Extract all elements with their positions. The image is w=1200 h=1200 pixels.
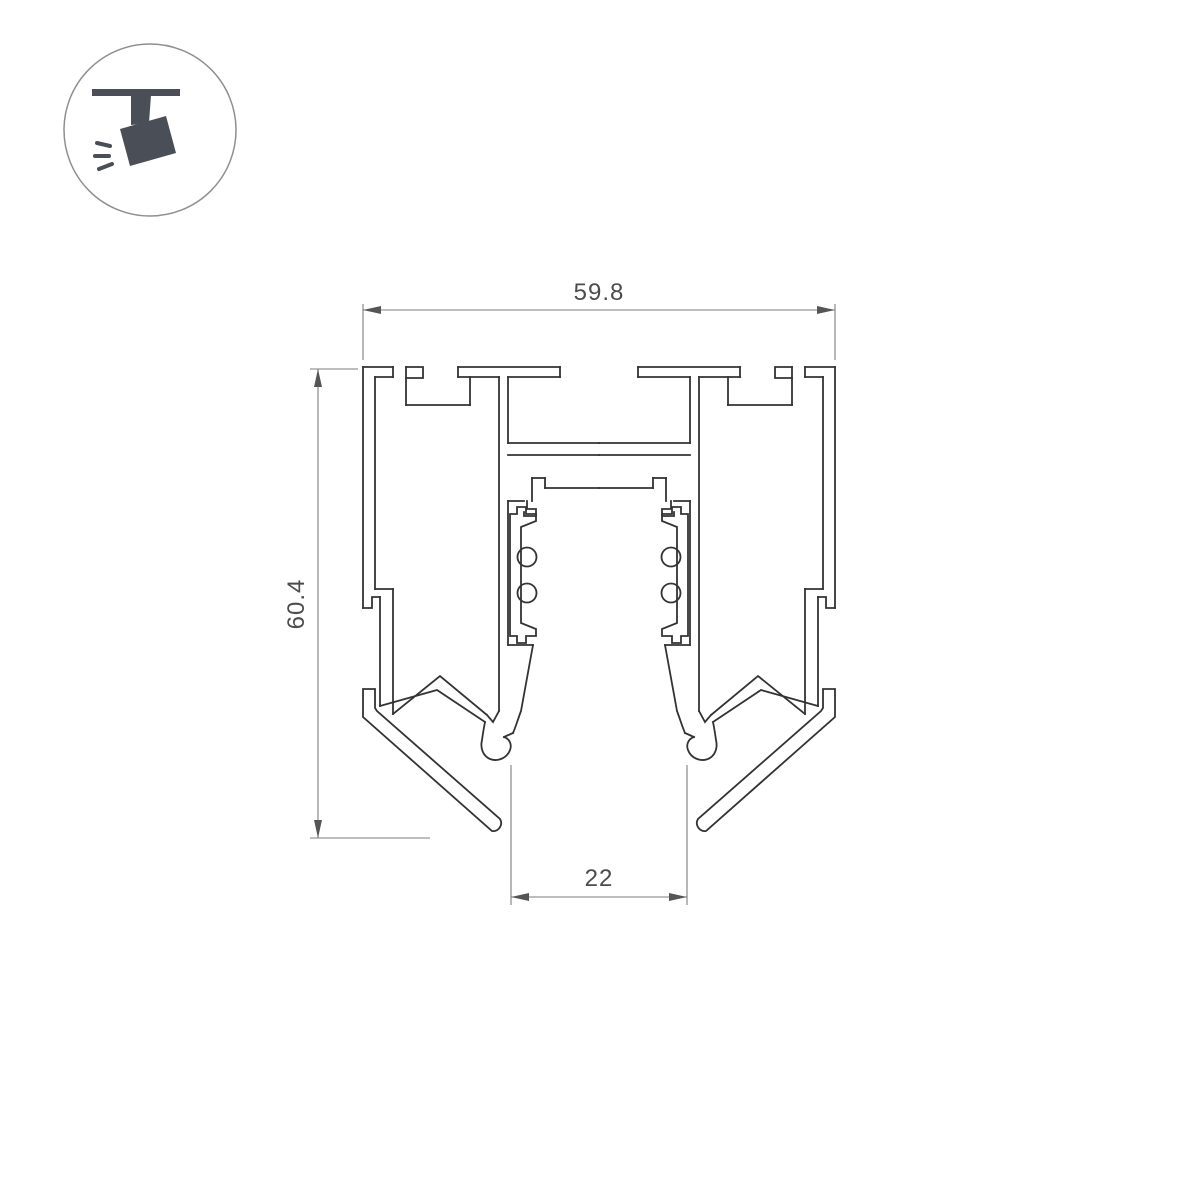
- insulator-outline: [510, 507, 536, 643]
- profile-left-half: [363, 367, 599, 831]
- dim-height-label: 60.4: [283, 579, 310, 630]
- dim-width-label: 59.8: [574, 279, 625, 306]
- profile-right-half-mirror: [599, 367, 835, 831]
- drawing-canvas: 59.8 60.4 22: [0, 0, 1200, 1200]
- dim-arrow-right: [817, 306, 835, 314]
- logo-badge: [64, 44, 236, 216]
- dimension-slot-width: 22: [511, 765, 687, 905]
- dimension-height: 60.4: [283, 369, 430, 838]
- dim-arrow-right: [669, 893, 687, 901]
- technical-drawing: 59.8 60.4 22: [0, 0, 1200, 1200]
- dim-slot-width-label: 22: [585, 865, 614, 892]
- dimension-width: 59.8: [363, 279, 835, 360]
- dim-arrow-up: [314, 369, 322, 387]
- lamp-stem-icon: [131, 95, 151, 125]
- dim-arrow-left: [363, 306, 381, 314]
- dim-arrow-left: [511, 893, 529, 901]
- ceiling-bar-icon: [92, 89, 180, 96]
- dim-arrow-down: [314, 820, 322, 838]
